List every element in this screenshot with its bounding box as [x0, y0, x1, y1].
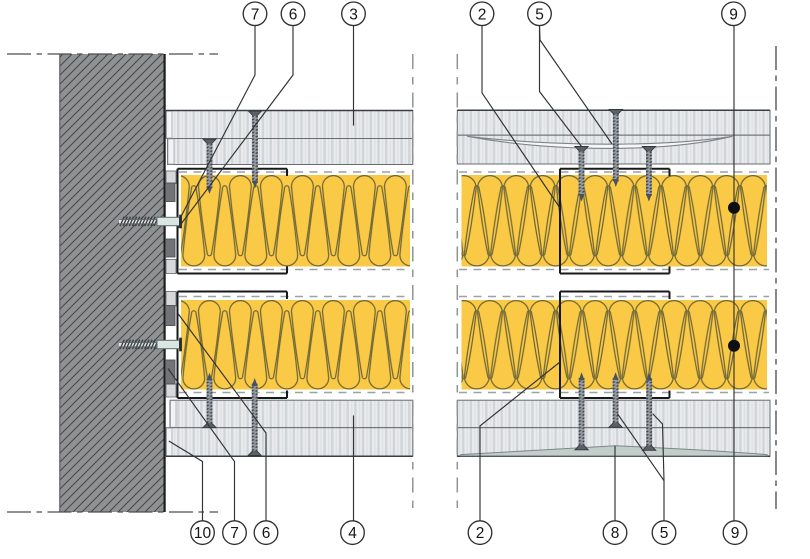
svg-text:4: 4 — [348, 525, 357, 542]
svg-text:6: 6 — [289, 6, 298, 23]
svg-text:9: 9 — [731, 525, 740, 542]
svg-text:9: 9 — [729, 6, 738, 23]
svg-text:2: 2 — [478, 6, 487, 23]
svg-text:2: 2 — [476, 525, 485, 542]
svg-text:10: 10 — [194, 525, 212, 542]
svg-text:7: 7 — [251, 6, 260, 23]
svg-text:6: 6 — [262, 525, 271, 542]
svg-text:7: 7 — [230, 525, 239, 542]
svg-text:5: 5 — [660, 525, 669, 542]
svg-text:5: 5 — [535, 6, 544, 23]
svg-text:8: 8 — [611, 525, 620, 542]
svg-text:3: 3 — [349, 6, 358, 23]
